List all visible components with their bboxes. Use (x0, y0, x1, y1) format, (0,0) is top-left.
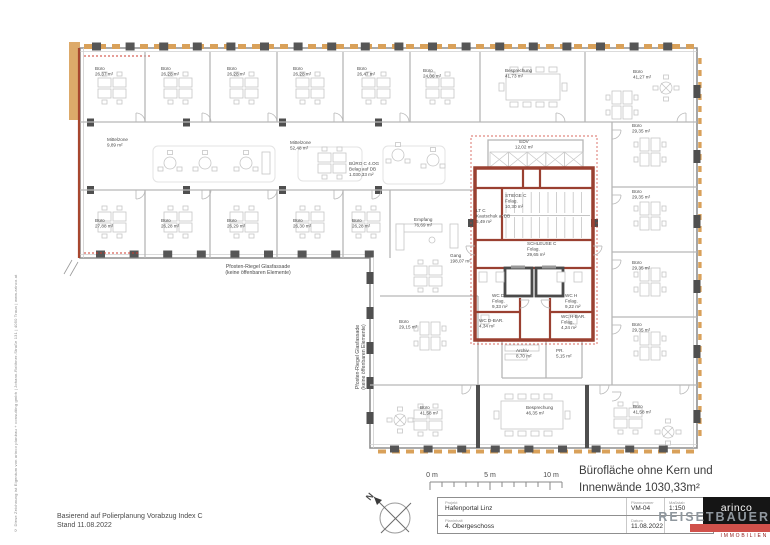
copyright-vertical: © Diese Zeichnung ist Eigentum von arinc… (13, 248, 18, 533)
area-note-line2: Innenwände 1030,33m² (579, 480, 759, 497)
company-logo: arinco REISETBAUER IMMOBILIEN (648, 497, 770, 535)
north-label: N (364, 491, 376, 502)
revision-note-line2: Stand 11.08.2022 (57, 521, 203, 530)
north-arrow (374, 497, 411, 533)
scale-tick-0: 0 m (426, 472, 438, 479)
room-label: Empfang76,69 m² (414, 217, 433, 227)
scale-bar (430, 482, 562, 490)
building-outline (80, 48, 697, 448)
area-note-line1: Bürofläche ohne Kern und (579, 463, 759, 480)
logo-tagline: IMMOBILIEN (721, 533, 770, 539)
project-value: Hafenportal Linz (445, 505, 626, 513)
logo-name: REISETBAUER (648, 510, 770, 524)
plan-content-value: 4. Obergeschoss (445, 523, 626, 531)
facade-break-symbol (64, 260, 78, 276)
revision-note: Basierend auf Polierplanung Vorabzug Ind… (57, 512, 203, 530)
drawing-sheet: Büro26,37 m²Büro26,28 m²Büro26,28 m²Büro… (0, 0, 770, 545)
scale-tick-10: 10 m (543, 472, 559, 479)
revision-note-line1: Basierend auf Polierplanung Vorabzug Ind… (57, 512, 203, 521)
facade-label-bottom: Pfosten-Riegel Glasfassade(keine öffenba… (225, 264, 291, 276)
project-cell: Projekt Hafenportal Linz (438, 498, 626, 515)
plan-content-cell: Planinhalt 4. Obergeschoss (438, 516, 626, 533)
scale-tick-5: 5 m (484, 472, 496, 479)
area-note: Bürofläche ohne Kern und Innenwände 1030… (579, 463, 759, 496)
facade-label-left: Pfosten-Riegel Glasfassade(keine öffenba… (355, 324, 367, 390)
logo-red-band: IMMOBILIEN (690, 524, 770, 532)
